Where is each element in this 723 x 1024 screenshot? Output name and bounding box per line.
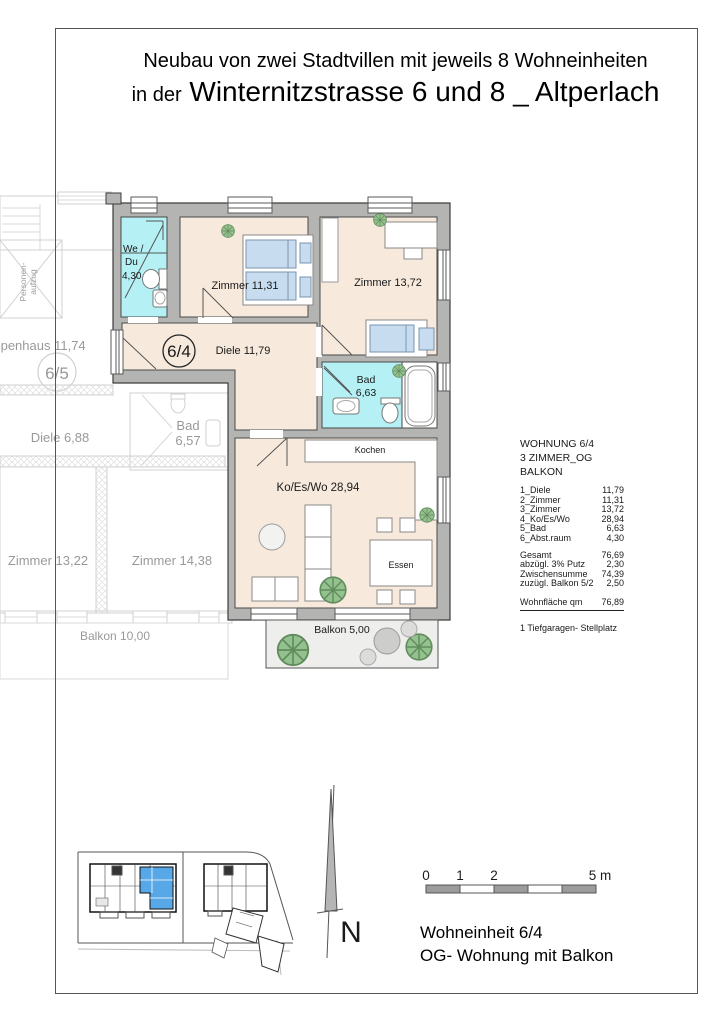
table-row: zuzügl. Balkon 5/22,50 [520,579,624,589]
title-line2: in der Winternitzstrasse 6 und 8 _ Altpe… [93,74,698,113]
main-unit-plan: 6/4 We / Du 4,30 Zimmer 11,31 Zimmer 13,… [106,193,450,668]
neighbor-bad-label: Bad [176,418,199,433]
parking-note: 1 Tiefgaragen- Stellplatz [520,623,624,633]
info-panel: WOHNUNG 6/4 3 ZIMMER_OG BALKON 1_Diele11… [520,437,624,633]
balkon-label: Balkon 5,00 [314,624,370,636]
row-value: 4,30 [606,534,624,544]
info-heading-1: WOHNUNG 6/4 [520,437,624,451]
north-label: N [340,916,362,949]
unit-badge-6-5-label: 6/5 [45,364,69,383]
info-heading-2: 3 ZIMMER_OG [520,451,624,465]
we-du-label-l3: 4,30 [122,271,142,282]
sheet-title: Neubau von zwei Stadtvillen mit jeweils … [55,48,698,113]
toilet-icon [143,270,160,289]
caption-line2: OG- Wohnung mit Balkon [420,944,613,967]
essen-label: Essen [388,560,413,570]
title-line2-main: Winternitzstrasse 6 und 8 _ Altperlach [189,76,659,107]
balcony-stool-icon [401,621,417,637]
scale-tick-2: 2 [490,868,498,883]
table-row: 6_Abst.raum4,30 [520,534,624,544]
scale-tick-1: 1 [456,868,464,883]
total-row: Wohnfläche qm 76,89 [520,598,624,611]
wohnen-label: Ko/Es/Wo 28,94 [277,482,360,494]
unit-badge-6-4-label: 6/4 [167,342,191,361]
bad-label-l2: 6,63 [356,387,377,399]
plan-sheet: Personen- aufzug Treppenhaus 11,74 6/5 B… [0,0,723,1024]
bed-icon [366,320,434,357]
plant-icon [278,635,308,665]
balcony-table-icon [374,628,400,654]
site-key-plan [78,852,293,975]
building-right [204,864,284,972]
kochen-label: Kochen [355,445,386,455]
plant-icon [374,214,387,227]
room-area-table: 1_Diele11,79 2_Zimmer11,31 3_Zimmer13,72… [520,486,624,544]
bad-label-l1: Bad [357,374,376,386]
sheet-caption: Wohneinheit 6/4 OG- Wohnung mit Balkon [420,921,613,967]
bathtub-icon [206,420,220,446]
zimmer3-label: Zimmer 13,72 [354,277,422,289]
row-label: zuzügl. Balkon 5/2 [520,579,594,589]
tv-bench-icon [252,577,298,601]
total-value: 76,89 [601,598,624,608]
summary-table: Gesamt76,69 abzügl. 3% Putz2,30 Zwischen… [520,551,624,589]
neighbor-zimmer2-label: Zimmer 14,38 [132,553,212,568]
we-du-label-l2: Du [125,257,138,268]
row-label: 6_Abst.raum [520,534,571,544]
plant-icon [222,225,235,238]
title-line1: Neubau von zwei Stadtvillen mit jeweils … [93,48,698,74]
coffee-table-icon [259,524,285,550]
plant-icon [320,577,346,603]
twin-beds-icon [243,235,313,305]
elevator-label-line2: aufzug [28,269,38,295]
toilet-tank-icon [159,269,167,289]
info-heading-3: BALKON [520,465,624,479]
we-du-label-l1: We / [123,244,144,255]
title-line2-prefix: in der [132,84,182,106]
scale-tick-0: 0 [422,868,430,883]
caption-line1: Wohneinheit 6/4 [420,921,613,944]
balcony-stool-icon [360,649,376,665]
scale-tick-5: 5 m [589,868,612,883]
building-left [90,864,176,918]
scale-bar: 0 1 2 5 m [422,868,611,893]
total-label: Wohnfläche qm [520,598,582,608]
zimmer2-label: Zimmer 11,31 [211,280,278,292]
neighbor-zimmer1-label: Zimmer 13,22 [8,553,88,568]
neighbor-diele-label: Diele 6,88 [31,430,90,445]
plant-icon [393,365,406,378]
plant-icon [406,634,432,660]
neighbor-balkon-label: Balkon 10,00 [80,629,150,643]
bathtub-icon [405,366,435,426]
north-arrow-icon: N [317,785,362,958]
elevator-label-line1: Personen- [18,262,28,301]
diele-label: Diele 11,79 [216,345,271,357]
plant-icon [420,508,434,522]
toilet-icon [382,403,398,423]
treppenhaus-label: Treppenhaus 11,74 [0,338,86,353]
neighbor-bad-area: 6,57 [175,433,200,448]
row-value: 2,50 [606,579,624,589]
